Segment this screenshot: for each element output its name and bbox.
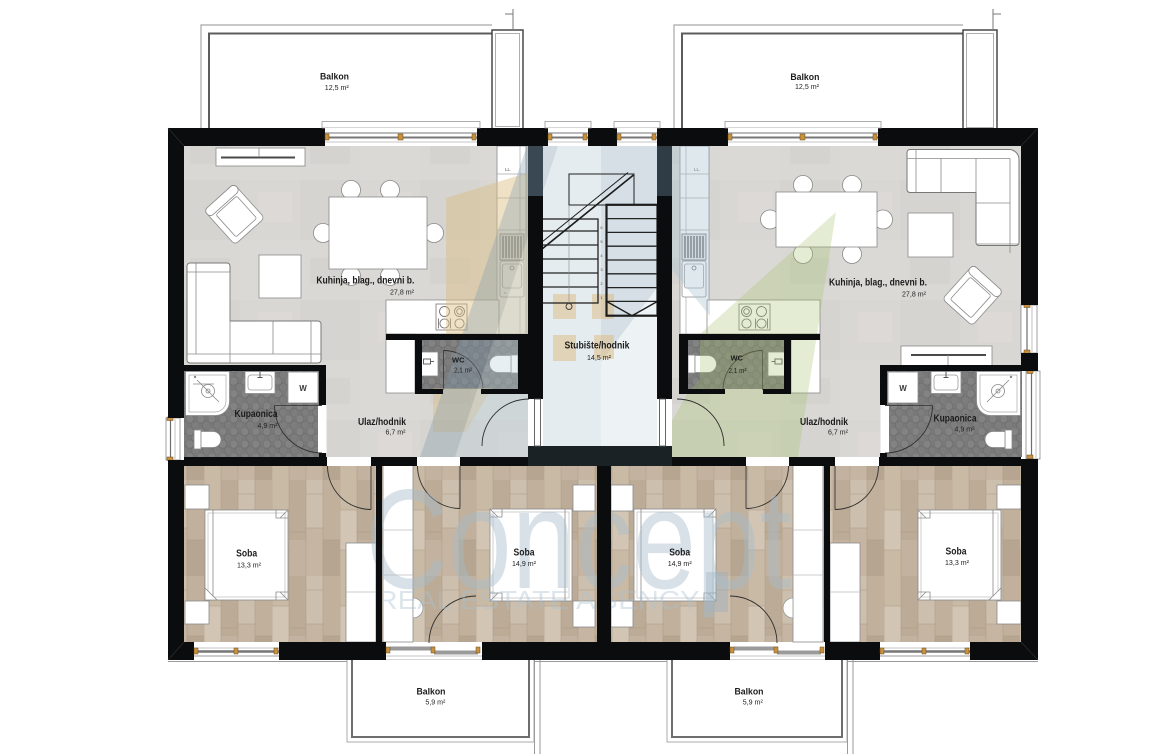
svg-text:14,9 m²: 14,9 m² <box>512 559 536 568</box>
svg-text:13,3 m²: 13,3 m² <box>945 558 969 567</box>
svg-text:4,9 m²: 4,9 m² <box>955 425 975 434</box>
svg-text:WC: WC <box>452 356 465 365</box>
svg-text:2,1 m²: 2,1 m² <box>454 368 473 375</box>
svg-text:Kuhinja, blag., dnevni b.: Kuhinja, blag., dnevni b. <box>829 278 927 289</box>
svg-text:12,5 m²: 12,5 m² <box>325 83 349 92</box>
svg-text:27,8 m²: 27,8 m² <box>390 288 414 297</box>
svg-text:27,8 m²: 27,8 m² <box>902 290 926 299</box>
svg-text:Balkon: Balkon <box>417 687 446 697</box>
svg-text:Balkon: Balkon <box>735 687 764 697</box>
svg-text:5,9 m²: 5,9 m² <box>743 697 763 706</box>
svg-text:Ulaz/hodnik: Ulaz/hodnik <box>800 417 848 428</box>
svg-text:Balkon: Balkon <box>790 72 819 82</box>
svg-text:13,3 m²: 13,3 m² <box>237 561 261 570</box>
svg-text:Kupaonica: Kupaonica <box>934 414 977 425</box>
svg-text:6,7 m²: 6,7 m² <box>828 428 848 437</box>
svg-text:Soba: Soba <box>236 549 257 560</box>
svg-text:5,9 m²: 5,9 m² <box>425 698 445 707</box>
svg-text:LL.: LL. <box>505 167 511 172</box>
svg-text:W: W <box>299 384 307 393</box>
svg-text:W: W <box>899 384 907 393</box>
svg-text:Balkon: Balkon <box>320 71 349 81</box>
svg-text:6,7 m²: 6,7 m² <box>386 428 406 437</box>
svg-text:Kupaonica: Kupaonica <box>235 409 278 420</box>
svg-text:12,5 m²: 12,5 m² <box>795 82 819 91</box>
svg-text:Soba: Soba <box>946 547 967 558</box>
svg-text:Soba: Soba <box>669 548 690 559</box>
svg-text:Kuhinja, blag., dnevni b.: Kuhinja, blag., dnevni b. <box>316 276 414 287</box>
svg-text:2,1 m²: 2,1 m² <box>729 368 748 375</box>
svg-text:14,5 m²: 14,5 m² <box>587 353 611 362</box>
svg-text:4,9 m²: 4,9 m² <box>258 421 278 430</box>
svg-text:Ulaz/hodnik: Ulaz/hodnik <box>358 417 406 428</box>
svg-text:Stubište/hodnik: Stubište/hodnik <box>565 341 630 352</box>
svg-text:REAL ESTATE AGENCY: REAL ESTATE AGENCY <box>377 585 700 615</box>
svg-text:14,9 m²: 14,9 m² <box>668 559 692 568</box>
svg-text:WC: WC <box>730 354 743 363</box>
svg-text:Soba: Soba <box>514 548 535 559</box>
